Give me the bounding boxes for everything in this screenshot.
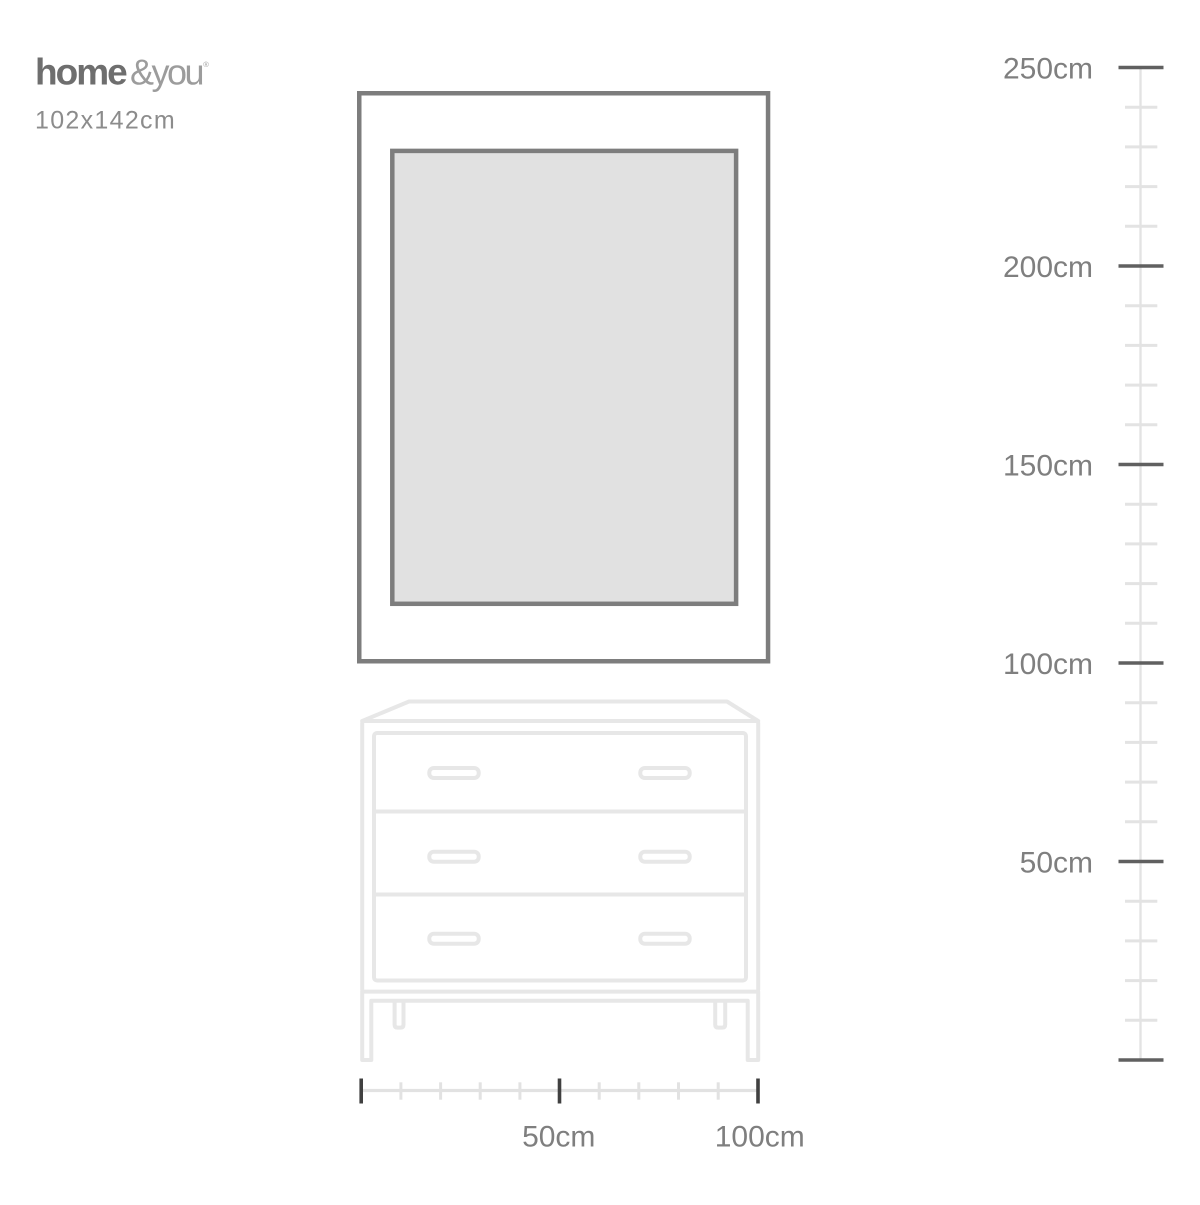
svg-text:150cm: 150cm [1003,449,1093,482]
svg-text:50cm: 50cm [522,1121,595,1154]
svg-text:&you: &you [130,52,203,93]
svg-text:®: ® [203,60,209,69]
svg-text:102x142cm: 102x142cm [35,107,176,135]
svg-text:home: home [35,52,127,93]
svg-text:50cm: 50cm [1020,846,1093,879]
svg-text:200cm: 200cm [1003,251,1093,284]
svg-text:100cm: 100cm [1003,648,1093,681]
svg-text:250cm: 250cm [1003,52,1093,85]
svg-text:100cm: 100cm [715,1121,805,1154]
